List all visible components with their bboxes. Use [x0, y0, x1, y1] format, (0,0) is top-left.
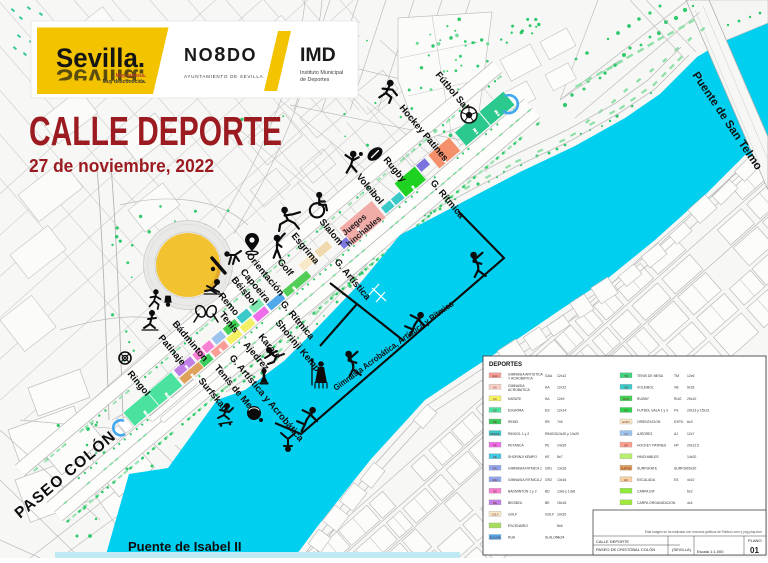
svg-text:13x16: 13x16	[557, 478, 566, 482]
svg-text:12x9: 12x9	[557, 397, 564, 401]
svg-text:ESGRIMA: ESGRIMA	[508, 409, 524, 413]
svg-text:GR1: GR1	[492, 466, 498, 470]
svg-text:RE: RE	[493, 420, 497, 424]
svg-text:HOCKEY PATINES: HOCKEY PATINES	[637, 443, 667, 447]
svg-text:20x13 y 15x13: 20x13 y 15x13	[687, 409, 709, 413]
svg-text:KE: KE	[493, 455, 497, 459]
svg-text:BEISBOL: BEISBOL	[508, 501, 523, 505]
svg-text:BE: BE	[493, 501, 497, 505]
svg-text:PE: PE	[545, 443, 550, 447]
svg-text:20x10: 20x10	[687, 397, 696, 401]
svg-text:Escala 1:1.000: Escala 1:1.000	[697, 549, 724, 554]
svg-text:20x20: 20x20	[687, 466, 696, 470]
svg-text:ORIENTACION: ORIENTACION	[637, 420, 661, 424]
svg-text:GOLF: GOLF	[491, 513, 498, 517]
svg-text:GAA: GAA	[492, 374, 498, 378]
svg-text:6x3: 6x3	[687, 420, 693, 424]
svg-text:ACROBATICA: ACROBATICA	[508, 388, 531, 392]
svg-text:TM: TM	[624, 374, 628, 378]
svg-text:12x12: 12x12	[557, 374, 566, 378]
svg-text:8x7: 8x7	[557, 455, 563, 459]
svg-text:7x5: 7x5	[557, 420, 563, 424]
svg-text:Sevilla.: Sevilla.	[56, 43, 145, 73]
svg-text:4x10: 4x10	[687, 478, 694, 482]
svg-text:RUGBY: RUGBY	[637, 397, 650, 401]
svg-text:9x18: 9x18	[687, 386, 694, 390]
svg-text:13x16: 13x16	[557, 466, 566, 470]
svg-text:EXPO: EXPO	[622, 420, 629, 424]
svg-text:HP: HP	[624, 443, 628, 447]
svg-text:RINGOL: RINGOL	[490, 432, 501, 436]
svg-text:FS: FS	[624, 409, 628, 413]
svg-text:12x6: 12x6	[687, 374, 694, 378]
svg-text:RINGOL 1 y 2: RINGOL 1 y 2	[508, 432, 529, 436]
svg-text:EXPO: EXPO	[674, 420, 684, 424]
svg-text:KA: KA	[545, 397, 550, 401]
svg-text:12x12: 12x12	[557, 386, 566, 390]
svg-text:RUA: RUA	[508, 536, 516, 540]
svg-text:(SEVILLA): (SEVILLA)	[672, 547, 692, 552]
svg-text:ES: ES	[624, 478, 628, 482]
svg-text:KA: KA	[493, 397, 497, 401]
svg-text:ES: ES	[545, 409, 550, 413]
svg-text:PE: PE	[493, 443, 497, 447]
svg-text:20x12.5: 20x12.5	[687, 443, 699, 447]
svg-text:GIMNASIA RITMICA 2: GIMNASIA RITMICA 2	[508, 478, 542, 482]
svg-text:GAA: GAA	[545, 374, 553, 378]
svg-text:Puente de Isabel II: Puente de Isabel II	[128, 539, 241, 554]
svg-text:ES: ES	[674, 478, 679, 482]
svg-text:BD: BD	[493, 490, 497, 494]
svg-text:GR2: GR2	[545, 478, 552, 482]
svg-text:GOLF: GOLF	[545, 513, 554, 517]
svg-text:REMO: REMO	[508, 420, 519, 424]
svg-text:NO8DO: NO8DO	[184, 44, 257, 66]
svg-text:BD: BD	[545, 490, 550, 494]
svg-text:14x20: 14x20	[687, 455, 696, 459]
svg-text:SHORINJI KEMPO: SHORINJI KEMPO	[508, 455, 537, 459]
svg-text:SURFSKATE: SURFSKATE	[637, 466, 658, 470]
svg-text:ESCALADA: ESCALADA	[637, 478, 656, 482]
svg-text:RE: RE	[545, 420, 550, 424]
svg-text:01: 01	[750, 546, 759, 555]
svg-text:14x20: 14x20	[557, 443, 566, 447]
svg-text:PASEO DE CRISTÓBAL COLÓN: PASEO DE CRISTÓBAL COLÓN	[596, 547, 655, 552]
svg-text:CARPA DIF: CARPA DIF	[637, 490, 655, 494]
svg-text:12x14: 12x14	[557, 409, 566, 413]
svg-text:10x20: 10x20	[557, 513, 566, 517]
svg-text:HINCHABLES: HINCHABLES	[637, 455, 659, 459]
svg-text:CALLE DEPORTE: CALLE DEPORTE	[29, 108, 282, 154]
svg-text:RUG: RUG	[674, 397, 682, 401]
svg-text:12x7: 12x7	[687, 432, 694, 436]
svg-text:4x24: 4x24	[557, 536, 564, 540]
svg-text:13x6 y 13x6: 13x6 y 13x6	[557, 490, 575, 494]
svg-text:KA: KA	[545, 386, 550, 390]
svg-text:KA: KA	[493, 386, 497, 390]
svg-text:SLALOM: SLALOM	[490, 536, 501, 540]
svg-text:15x16: 15x16	[557, 501, 566, 505]
svg-text:Esta imagen se ha realizado co: Esta imagen se ha realizado con recursos…	[645, 530, 762, 534]
svg-text:27 de noviembre, 2022: 27 de noviembre, 2022	[29, 156, 214, 176]
svg-text:PETANCA: PETANCA	[508, 443, 525, 447]
svg-text:FS: FS	[674, 409, 679, 413]
svg-text:GR2: GR2	[492, 478, 498, 482]
svg-text:FUTBOL SALA 1 y 3: FUTBOL SALA 1 y 3	[637, 409, 668, 413]
svg-text:TM: TM	[674, 374, 679, 378]
svg-text:8x6: 8x6	[557, 524, 563, 528]
svg-text:PLANO: PLANO	[748, 538, 762, 543]
svg-text:KE: KE	[545, 455, 550, 459]
svg-text:VB: VB	[674, 386, 679, 390]
svg-text:HP: HP	[674, 443, 679, 447]
svg-text:RUG: RUG	[623, 397, 629, 401]
svg-text:Y ACROBATICA: Y ACROBATICA	[508, 376, 533, 380]
svg-text:GOLF: GOLF	[508, 513, 517, 517]
svg-text:AJ: AJ	[674, 432, 678, 436]
svg-text:ESCENARIO: ESCENARIO	[508, 524, 528, 528]
svg-text:DEPORTES: DEPORTES	[489, 362, 522, 368]
svg-text:de Deportes: de Deportes	[300, 77, 330, 83]
svg-text:BE: BE	[545, 501, 550, 505]
svg-text:IMD: IMD	[300, 44, 336, 66]
svg-text:GR1: GR1	[545, 466, 552, 470]
svg-text:VOLEIBOL: VOLEIBOL	[637, 386, 654, 390]
svg-text:BADMINTON 1 y 2: BADMINTON 1 y 2	[508, 490, 537, 494]
svg-text:Instituto Municipal: Instituto Municipal	[300, 70, 343, 76]
svg-text:VB: VB	[624, 386, 628, 390]
svg-text:AYUNTAMIENTO DE SEVILLA: AYUNTAMIENTO DE SEVILLA	[184, 74, 264, 79]
svg-text:Muy desconocida.: Muy desconocida.	[103, 79, 147, 85]
svg-text:TENIS DE MESA: TENIS DE MESA	[637, 374, 664, 378]
svg-text:GIMNASIA RITMICA 1: GIMNASIA RITMICA 1	[508, 466, 542, 470]
svg-text:13x20 y 10x20: 13x20 y 10x20	[557, 432, 579, 436]
svg-text:ES: ES	[493, 409, 497, 413]
svg-text:KARATE: KARATE	[508, 397, 522, 401]
svg-text:CALLE DEPORTE: CALLE DEPORTE	[596, 539, 629, 544]
svg-text:SURFSK: SURFSK	[621, 466, 632, 470]
svg-text:CARPA ORGANIZACION: CARPA ORGANIZACION	[637, 501, 676, 505]
svg-text:4x4: 4x4	[687, 501, 693, 505]
svg-text:AJEDREZ: AJEDREZ	[637, 432, 652, 436]
svg-text:6x2: 6x2	[687, 490, 693, 494]
